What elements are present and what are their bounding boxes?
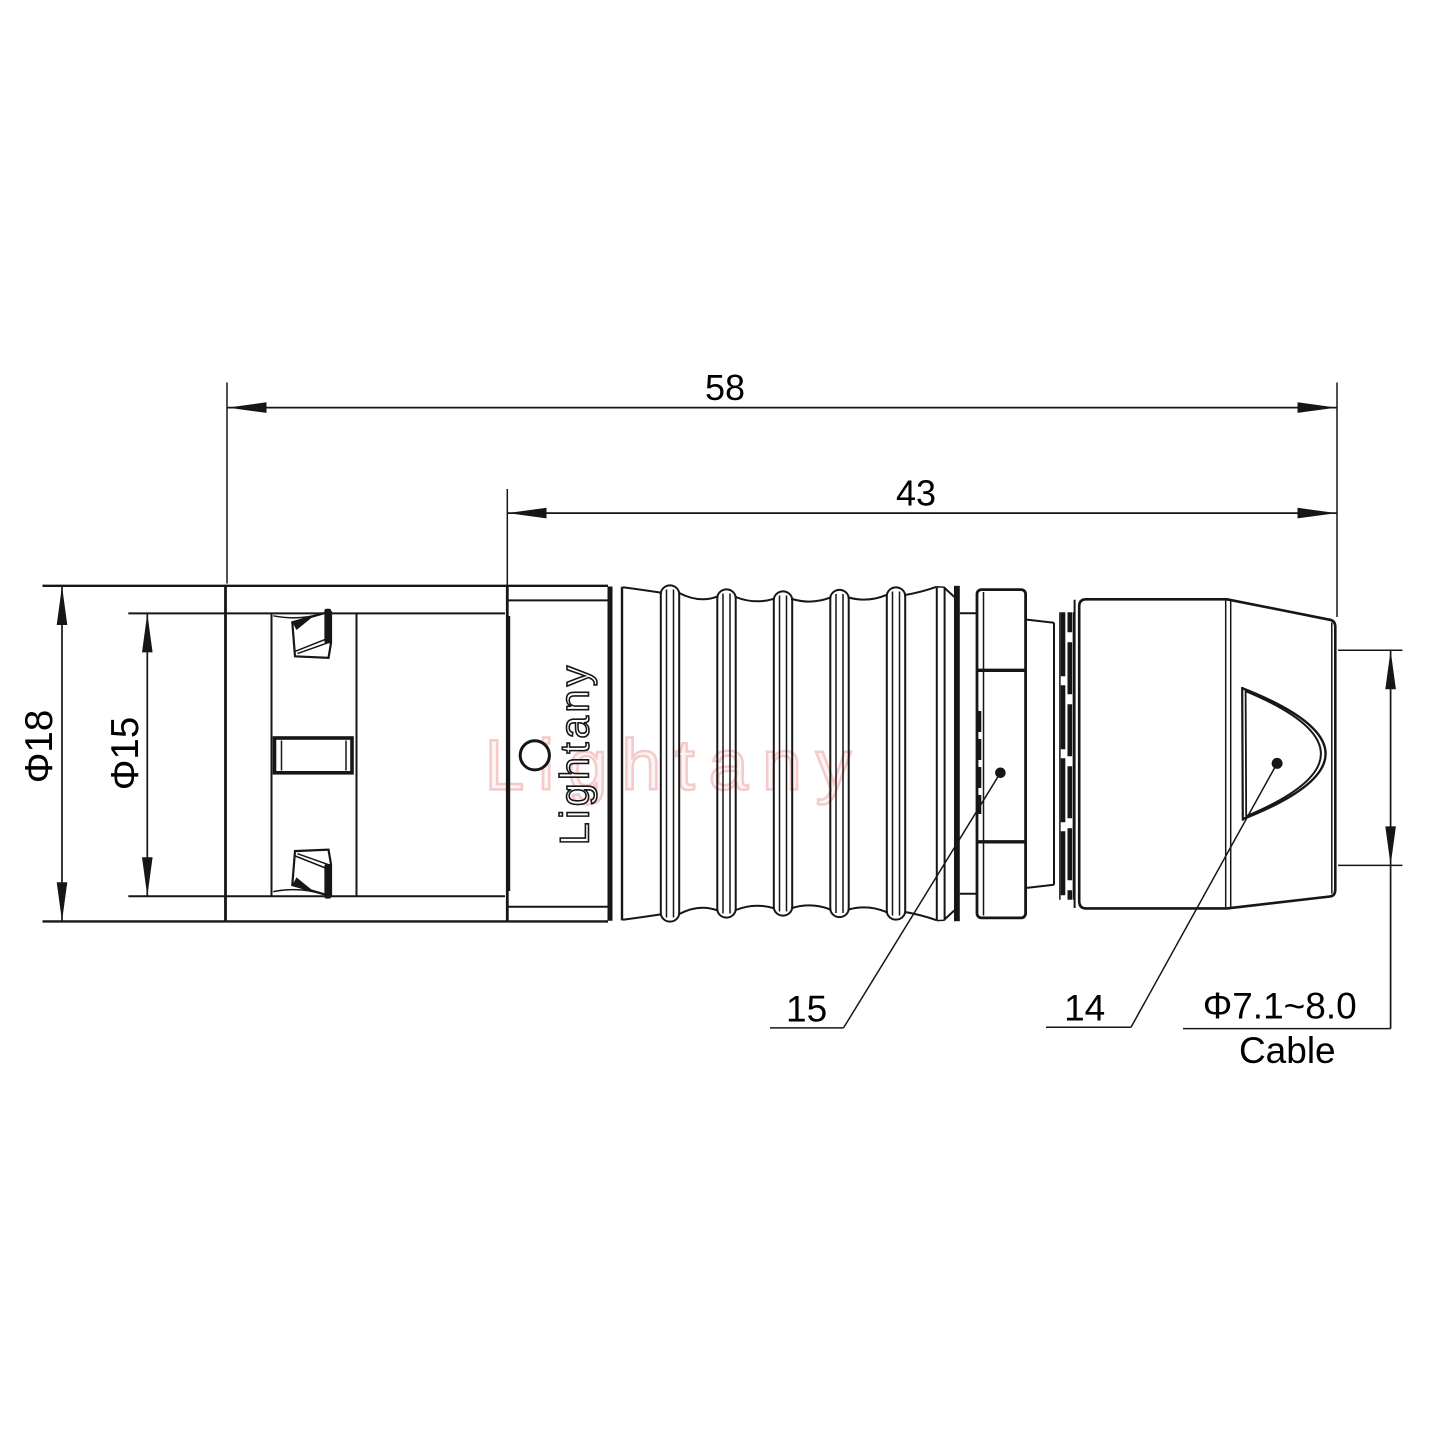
svg-text:Φ15: Φ15 bbox=[104, 717, 147, 791]
svg-text:Lightany: Lightany bbox=[551, 662, 597, 845]
svg-text:14: 14 bbox=[1064, 988, 1105, 1029]
svg-text:Φ18: Φ18 bbox=[18, 710, 61, 784]
svg-text:58: 58 bbox=[705, 367, 745, 408]
svg-text:Φ7.1~8.0: Φ7.1~8.0 bbox=[1203, 986, 1357, 1027]
svg-text:43: 43 bbox=[896, 473, 936, 514]
svg-text:Cable: Cable bbox=[1239, 1030, 1336, 1071]
svg-text:15: 15 bbox=[786, 989, 827, 1030]
